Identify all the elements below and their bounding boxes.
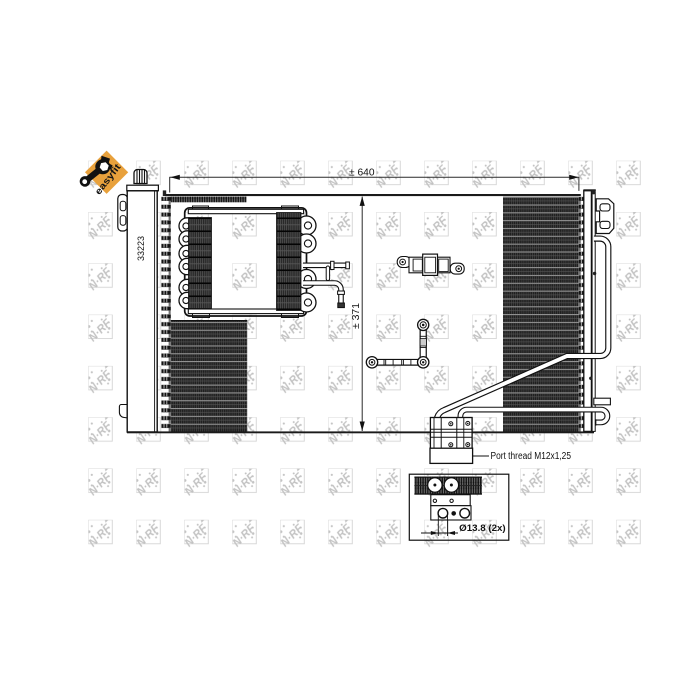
- svg-text:± 640: ± 640: [349, 167, 375, 179]
- svg-text:± 371: ± 371: [350, 303, 362, 329]
- svg-text:33223: 33223: [136, 236, 147, 261]
- svg-text:Port thread M12x1,25: Port thread M12x1,25: [491, 451, 572, 462]
- svg-text:Ø13.8 (2x): Ø13.8 (2x): [459, 523, 506, 534]
